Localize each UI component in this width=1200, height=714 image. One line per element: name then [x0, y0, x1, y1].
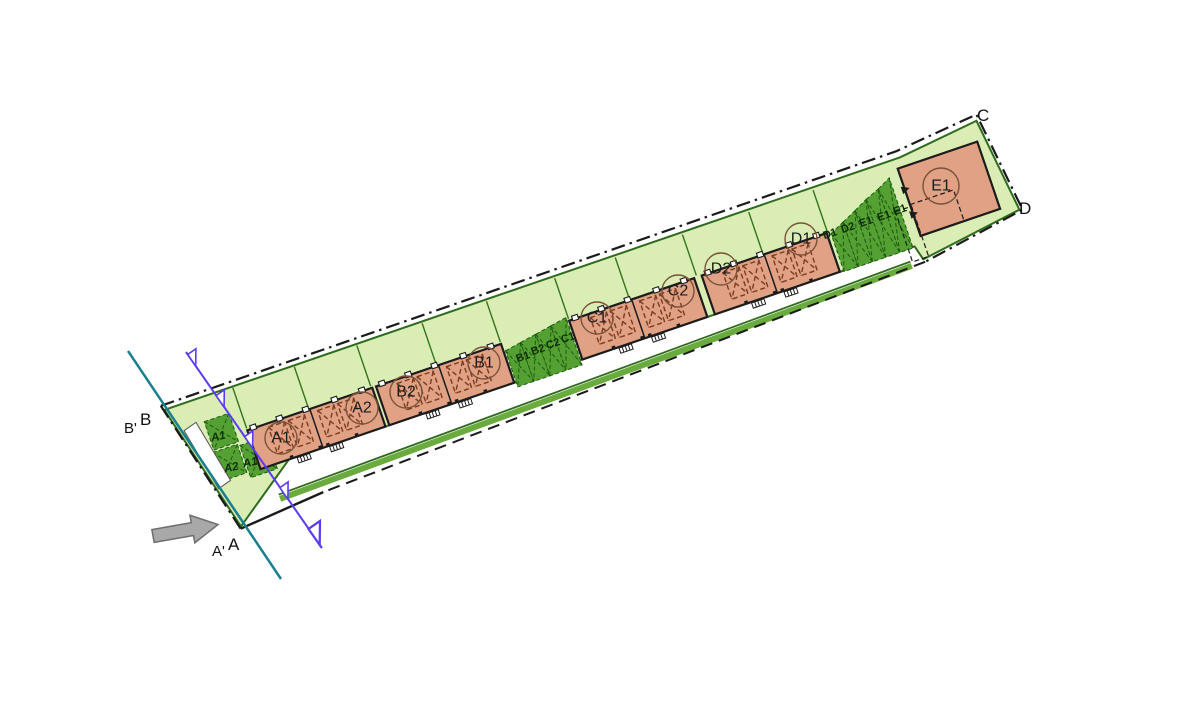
section-label-b-prime: B'	[124, 420, 137, 437]
site-plan-canvas: A1 A2 B2 B1 C1 C2 D2 D1	[0, 0, 1200, 714]
section-label-a: A	[228, 535, 240, 554]
svg-text:A1: A1	[271, 430, 291, 447]
svg-text:B1: B1	[474, 355, 494, 372]
section-label-a-prime: A'	[212, 543, 225, 560]
svg-text:C2: C2	[668, 283, 689, 300]
corner-label-d: D	[1019, 199, 1031, 218]
section-label-b: B	[140, 410, 151, 429]
background	[0, 0, 1200, 714]
svg-text:A2: A2	[352, 400, 372, 417]
site-plan-svg: A1 A2 B2 B1 C1 C2 D2 D1	[0, 0, 1200, 714]
svg-text:E1: E1	[931, 178, 951, 195]
svg-text:B2: B2	[396, 384, 416, 401]
svg-text:D1: D1	[791, 231, 812, 248]
corner-label-c: C	[977, 106, 989, 125]
svg-text:D2: D2	[711, 261, 732, 278]
svg-text:C1: C1	[587, 310, 608, 327]
